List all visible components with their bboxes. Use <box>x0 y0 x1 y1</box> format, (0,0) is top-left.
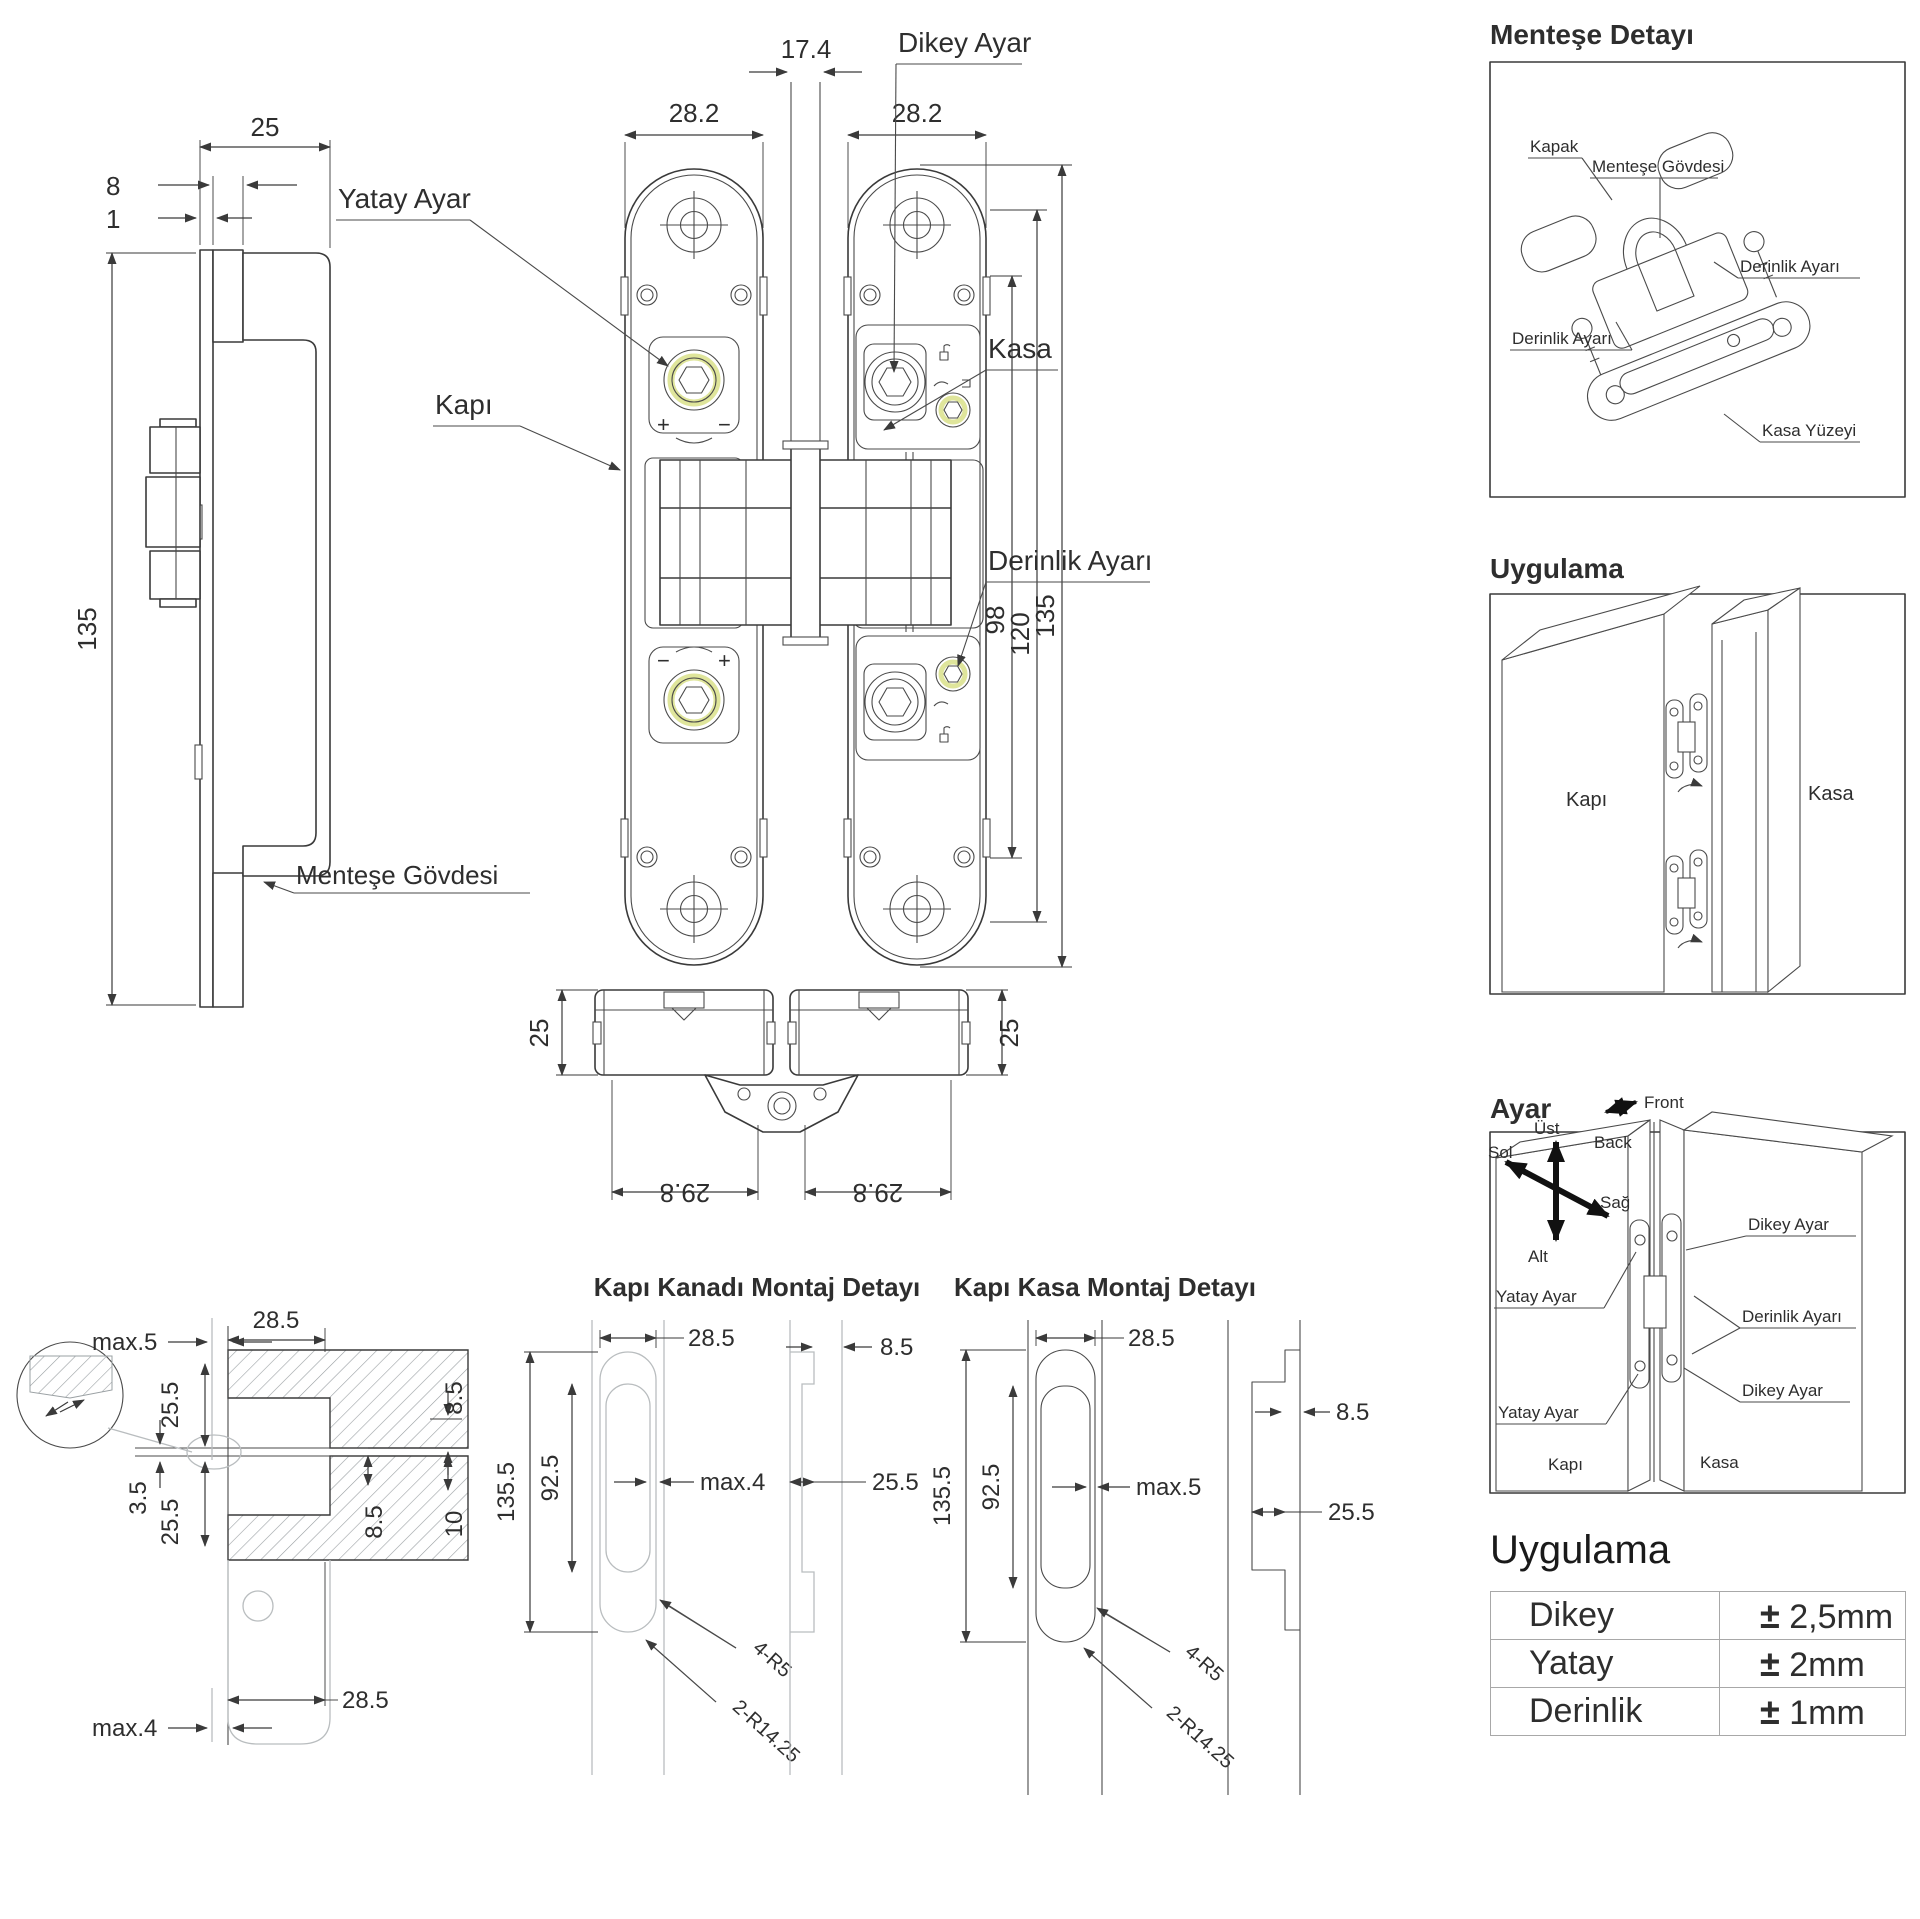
top-dim-29-8-right: 29.8 <box>853 1178 904 1208</box>
adj-label-sol: Sol <box>1488 1143 1513 1162</box>
plus-mark: + <box>718 648 731 673</box>
frame-dim-25-5: 25.5 <box>1328 1499 1375 1526</box>
sect-dim-28-5-top: 28.5 <box>253 1307 300 1334</box>
leaf-dim-28-5: 28.5 <box>688 1325 735 1352</box>
front-dim-17-4: 17.4 <box>781 34 832 64</box>
svg-text:Dikey Ayar: Dikey Ayar <box>898 27 1031 58</box>
leaf-dim-2-r14-25: 2-R14.25 <box>728 1696 804 1767</box>
adj-label-front: Front <box>1644 1093 1684 1112</box>
plus-minus-sign: ± <box>1760 1691 1780 1732</box>
table-row: Dikey ± 2,5mm <box>1491 1592 1906 1640</box>
frame-mount-detail: Kapı Kasa Montaj Detayı 28.5 135.5 92.5 … <box>929 1272 1375 1795</box>
front-knuckle <box>660 441 951 645</box>
leaf-detail-title: Kapı Kanadı Montaj Detayı <box>594 1272 921 1302</box>
adjustment-hinge <box>1630 1214 1681 1388</box>
frame-dim-2-r14-25: 2-R14.25 <box>1162 1702 1238 1773</box>
svg-text:Yatay Ayar: Yatay Ayar <box>338 183 471 214</box>
sect-dim-28-5-bottom: 28.5 <box>342 1687 389 1714</box>
leaf-dim-8-5: 8.5 <box>880 1334 913 1361</box>
adj-label-kapi: Kapı <box>1548 1455 1583 1474</box>
leaf-mount-detail: Kapı Kanadı Montaj Detayı 28.5 135.5 92.… <box>493 1272 920 1775</box>
svg-text:Derinlik Ayarı: Derinlik Ayarı <box>988 545 1152 576</box>
adj-label-yatay-top: Yatay Ayar <box>1496 1287 1577 1306</box>
front-label-yatay: Yatay Ayar <box>336 183 668 366</box>
tolerance-table-section: Uygulama Dikey ± 2,5mm Yatay ± 2mm Derin… <box>1490 1528 1906 1736</box>
top-view-left-half <box>593 990 775 1075</box>
adj-label-derinlik: Derinlik Ayarı <box>1742 1307 1842 1326</box>
sect-dim-25-5-b: 25.5 <box>157 1499 184 1546</box>
front-label-kapi: Kapı <box>433 389 620 470</box>
top-dim-25-left: 25 <box>524 1019 554 1048</box>
adj-label-back: Back <box>1594 1133 1632 1152</box>
adj-label-yatay-bottom: Yatay Ayar <box>1498 1403 1579 1422</box>
leaf-dim-25-5: 25.5 <box>872 1469 919 1496</box>
mounted-hinge <box>1666 850 1707 948</box>
technical-drawing-sheet: 25 8 1 135 Menteşe Gövdesi + − <box>0 0 1920 1919</box>
side-dim-8: 8 <box>106 171 120 201</box>
sect-dim-25-5-a: 25.5 <box>157 1382 184 1429</box>
application-title: Uygulama <box>1490 553 1624 584</box>
frame-dim-92-5: 92.5 <box>978 1464 1005 1511</box>
table-row: Yatay ± 2mm <box>1491 1640 1906 1688</box>
adj-label-kasa: Kasa <box>1700 1453 1739 1472</box>
tolerance-value-text: 2,5mm <box>1789 1598 1893 1636</box>
tolerance-row-value: ± 1mm <box>1720 1688 1906 1736</box>
mounted-hinge <box>1666 694 1707 792</box>
front-dim-28-2-left: 28.2 <box>669 98 720 128</box>
front-dim-28-2-right: 28.2 <box>892 98 943 128</box>
leaf-dim-135-5: 135.5 <box>493 1462 520 1522</box>
leaf-dim-4-r5: 4-R5 <box>749 1637 796 1682</box>
sect-dim-10: 10 <box>441 1511 468 1538</box>
frame-dim-8-5: 8.5 <box>1336 1399 1369 1426</box>
application-drawing: Kapı Kasa <box>1502 586 1854 992</box>
tolerance-row-value: ± 2mm <box>1720 1640 1906 1688</box>
application-panel: Uygulama Kapı Kasa <box>1490 553 1905 994</box>
label-kasa-yuzeyi: Kasa Yüzeyi <box>1762 421 1856 440</box>
hinge-detail-title: Menteşe Detayı <box>1490 19 1694 50</box>
top-view-right-half <box>788 990 970 1075</box>
tolerance-value-text: 2mm <box>1789 1646 1865 1684</box>
adjustment-drawing: Front Back Üst Sol Sağ Alt Dikey Ayar Ya… <box>1488 1093 1892 1491</box>
side-dim-135: 135 <box>72 607 102 650</box>
cross-section: 28.5 max.5 25.5 3.5 25.5 max.4 8.5 10 8.… <box>17 1307 468 1745</box>
frame-dim-28-5: 28.5 <box>1128 1325 1175 1352</box>
app-label-kapi: Kapı <box>1566 789 1607 811</box>
frame-dim-4-r5: 4-R5 <box>1181 1641 1228 1686</box>
svg-text:Kapı: Kapı <box>435 389 493 420</box>
tolerance-row-label: Yatay <box>1491 1640 1720 1688</box>
label-govde: Menteşe Gövdesi <box>1592 157 1724 176</box>
detail-circle <box>17 1342 241 1469</box>
side-knuckle <box>146 419 200 607</box>
adj-label-sag: Sağ <box>1600 1193 1630 1212</box>
minus-mark: − <box>657 648 670 673</box>
frame-detail-title: Kapı Kasa Montaj Detayı <box>954 1272 1256 1302</box>
adj-label-dikey-bottom: Dikey Ayar <box>1742 1381 1823 1400</box>
label-derinlik-right: Derinlik Ayarı <box>1740 257 1840 276</box>
tolerance-table-title: Uygulama <box>1490 1528 1906 1573</box>
label-kapak: Kapak <box>1530 137 1579 156</box>
plus-minus-sign: ± <box>1760 1595 1780 1636</box>
table-row: Derinlik ± 1mm <box>1491 1688 1906 1736</box>
top-dim-29-8-left: 29.8 <box>660 1178 711 1208</box>
front-dim-135: 135 <box>1030 594 1060 637</box>
app-label-kasa: Kasa <box>1808 783 1854 805</box>
adjustment-panel: Ayar Front Back Üst Sol Sağ Alt Dikey Ay… <box>1488 1093 1905 1493</box>
plus-minus-sign: ± <box>1760 1643 1780 1684</box>
side-dim-1: 1 <box>106 204 120 234</box>
adj-label-ust: Üst <box>1534 1119 1560 1138</box>
side-dim-25: 25 <box>251 112 280 142</box>
frame-profile <box>1228 1320 1300 1795</box>
minus-mark: − <box>718 412 731 437</box>
tolerance-row-value: ± 2,5mm <box>1720 1592 1906 1640</box>
sect-dim-max5: max.5 <box>92 1329 157 1356</box>
sect-dim-8-5-b: 8.5 <box>361 1505 388 1538</box>
sect-dim-max4: max.4 <box>92 1715 157 1742</box>
tolerance-value-text: 1mm <box>1789 1694 1865 1732</box>
top-dim-25-right: 25 <box>994 1019 1024 1048</box>
plus-mark: + <box>657 412 670 437</box>
adj-label-dikey-top: Dikey Ayar <box>1748 1215 1829 1234</box>
tolerance-row-label: Dikey <box>1491 1592 1720 1640</box>
svg-text:Kasa: Kasa <box>988 333 1052 364</box>
front-view: + − − + <box>336 27 1152 967</box>
side-body-label: Menteşe Gövdesi <box>296 860 498 890</box>
frame-dim-135-5: 135.5 <box>929 1466 956 1526</box>
tolerance-table: Dikey ± 2,5mm Yatay ± 2mm Derinlik ± 1mm <box>1490 1591 1906 1736</box>
top-view-yoke <box>705 1075 858 1132</box>
frame-dim-max5: max.5 <box>1136 1474 1201 1501</box>
sect-dim-3-5: 3.5 <box>125 1481 152 1514</box>
leaf-profile <box>790 1320 842 1775</box>
tolerance-row-label: Derinlik <box>1491 1688 1720 1736</box>
hinge-detail-panel: Menteşe Detayı Kapak Menteşe Gövdesi Der… <box>1490 19 1905 497</box>
leaf-dim-max4: max.4 <box>700 1469 765 1496</box>
sect-dim-8-5-a: 8.5 <box>441 1381 468 1414</box>
top-view: 25 25 29.8 29.8 <box>524 990 1024 1208</box>
leaf-dim-92-5: 92.5 <box>537 1455 564 1502</box>
side-view: 25 8 1 135 Menteşe Gövdesi <box>72 112 530 1007</box>
label-derinlik-left: Derinlik Ayarı <box>1512 329 1612 348</box>
adj-label-alt: Alt <box>1528 1247 1548 1266</box>
